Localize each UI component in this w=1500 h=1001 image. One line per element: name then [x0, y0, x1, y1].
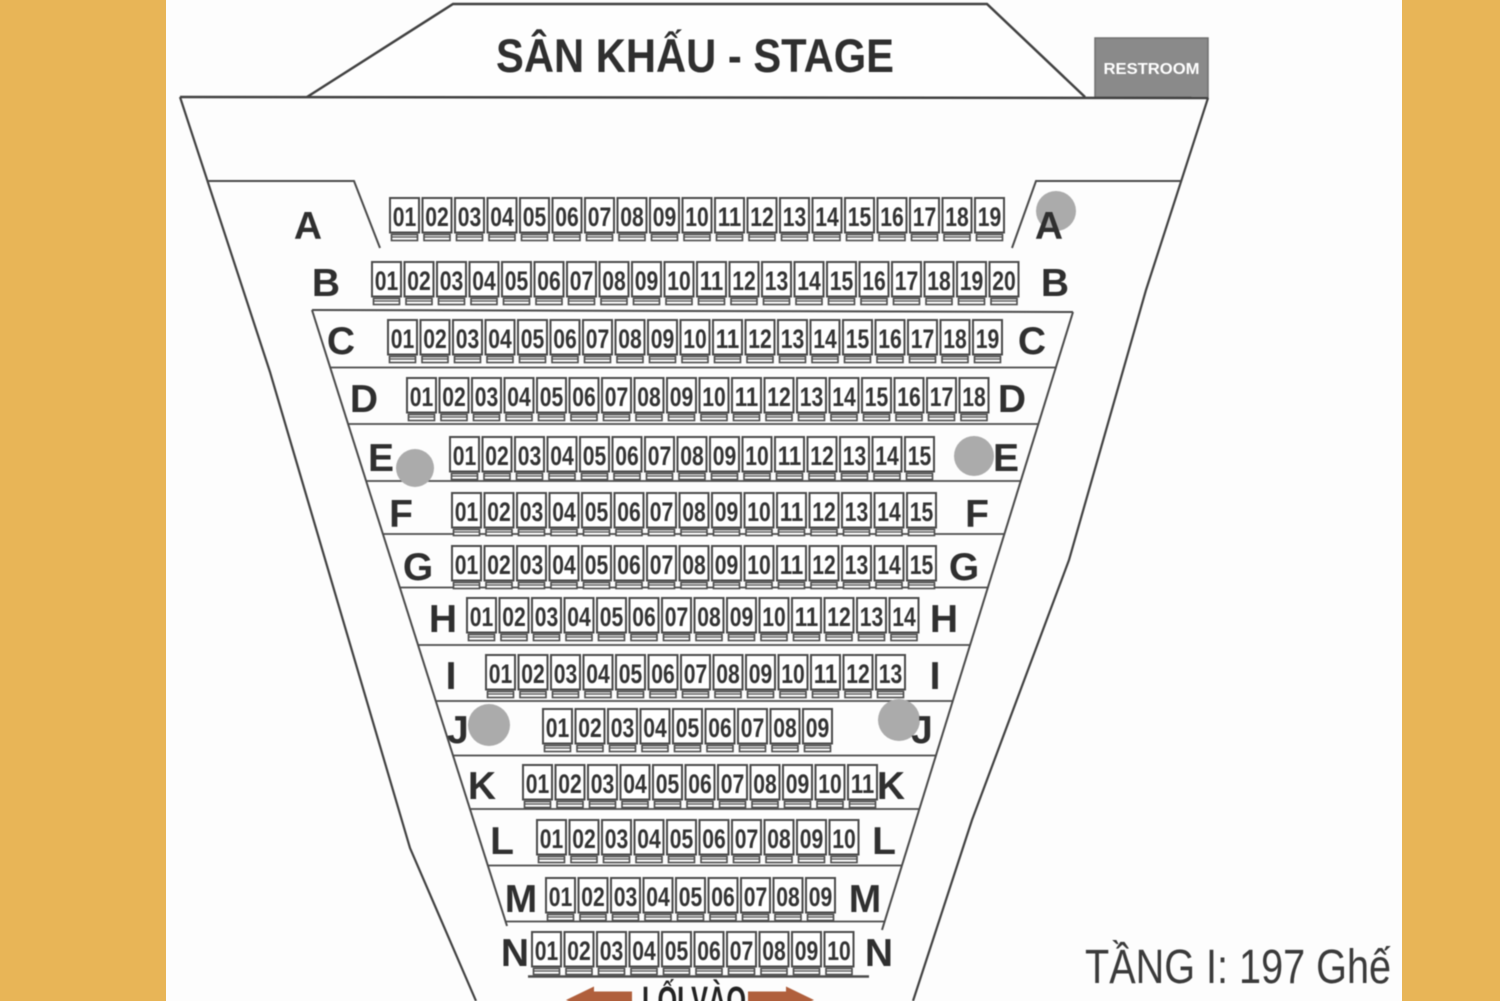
svg-text:02: 02	[487, 497, 511, 527]
svg-text:07: 07	[665, 602, 689, 632]
svg-text:07: 07	[586, 324, 610, 354]
svg-text:05: 05	[600, 602, 624, 632]
svg-text:01: 01	[453, 441, 477, 471]
svg-text:04: 04	[632, 936, 656, 966]
svg-text:08: 08	[682, 497, 706, 527]
svg-text:10: 10	[827, 936, 851, 966]
svg-text:04: 04	[552, 550, 576, 580]
svg-text:09: 09	[809, 882, 833, 912]
svg-text:08: 08	[637, 382, 661, 412]
svg-text:09: 09	[715, 497, 739, 527]
svg-text:14: 14	[877, 550, 901, 580]
svg-text:06: 06	[555, 202, 579, 232]
svg-text:06: 06	[553, 324, 577, 354]
svg-text:C: C	[1018, 320, 1046, 363]
svg-text:01: 01	[489, 659, 513, 689]
svg-text:12: 12	[810, 441, 834, 471]
svg-text:11: 11	[778, 441, 802, 471]
svg-text:07: 07	[588, 202, 612, 232]
svg-text:01: 01	[546, 713, 570, 743]
svg-text:01: 01	[375, 266, 399, 296]
svg-text:06: 06	[711, 882, 735, 912]
svg-text:02: 02	[407, 266, 431, 296]
svg-text:16: 16	[897, 382, 921, 412]
svg-text:18: 18	[945, 202, 969, 232]
svg-text:11: 11	[795, 602, 819, 632]
svg-text:01: 01	[540, 824, 564, 854]
svg-text:06: 06	[697, 936, 721, 966]
svg-text:02: 02	[485, 441, 509, 471]
svg-text:05: 05	[585, 550, 609, 580]
svg-text:J: J	[911, 709, 933, 752]
svg-text:14: 14	[797, 266, 821, 296]
svg-text:05: 05	[523, 202, 547, 232]
svg-text:07: 07	[741, 713, 765, 743]
svg-text:D: D	[998, 378, 1026, 421]
svg-text:17: 17	[895, 266, 919, 296]
svg-text:08: 08	[716, 659, 740, 689]
svg-text:03: 03	[600, 936, 624, 966]
svg-text:07: 07	[648, 441, 672, 471]
svg-text:09: 09	[713, 441, 737, 471]
svg-text:16: 16	[880, 202, 904, 232]
svg-text:LỐI VÀO: LỐI VÀO	[642, 977, 746, 1001]
svg-text:10: 10	[762, 602, 786, 632]
svg-text:12: 12	[767, 382, 791, 412]
svg-text:15: 15	[848, 202, 872, 232]
svg-text:01: 01	[535, 936, 559, 966]
svg-text:06: 06	[632, 602, 656, 632]
svg-text:18: 18	[962, 382, 986, 412]
svg-text:10: 10	[818, 769, 842, 799]
svg-text:E: E	[993, 437, 1019, 480]
svg-text:04: 04	[490, 202, 514, 232]
svg-text:07: 07	[744, 882, 768, 912]
svg-text:08: 08	[602, 266, 626, 296]
svg-text:10: 10	[685, 202, 709, 232]
svg-text:01: 01	[470, 602, 494, 632]
svg-text:01: 01	[391, 324, 415, 354]
svg-text:04: 04	[586, 659, 610, 689]
svg-text:09: 09	[730, 602, 754, 632]
svg-text:C: C	[327, 320, 355, 363]
svg-text:03: 03	[458, 202, 482, 232]
svg-text:I: I	[446, 655, 457, 698]
svg-text:09: 09	[670, 382, 694, 412]
svg-text:13: 13	[845, 497, 869, 527]
svg-text:09: 09	[795, 936, 819, 966]
svg-text:09: 09	[651, 324, 675, 354]
svg-text:09: 09	[635, 266, 659, 296]
svg-text:F: F	[389, 493, 413, 536]
svg-text:10: 10	[683, 324, 707, 354]
svg-text:06: 06	[615, 441, 639, 471]
svg-text:01: 01	[410, 382, 434, 412]
svg-text:04: 04	[550, 441, 574, 471]
svg-text:N: N	[501, 932, 529, 975]
svg-text:SÂN KHẤU - STAGE: SÂN KHẤU - STAGE	[496, 29, 894, 82]
svg-text:02: 02	[502, 602, 526, 632]
svg-text:04: 04	[623, 769, 647, 799]
svg-text:E: E	[368, 437, 394, 480]
svg-text:17: 17	[930, 382, 954, 412]
svg-text:05: 05	[656, 769, 680, 799]
svg-text:11: 11	[780, 497, 804, 527]
svg-text:01: 01	[455, 550, 479, 580]
svg-text:13: 13	[879, 659, 903, 689]
svg-text:11: 11	[735, 382, 759, 412]
svg-text:16: 16	[878, 324, 902, 354]
svg-text:06: 06	[708, 713, 732, 743]
svg-text:03: 03	[591, 769, 615, 799]
svg-text:04: 04	[643, 713, 667, 743]
svg-text:03: 03	[614, 882, 638, 912]
svg-text:F: F	[965, 493, 989, 536]
svg-text:11: 11	[716, 324, 740, 354]
svg-text:03: 03	[535, 602, 559, 632]
svg-text:02: 02	[578, 713, 602, 743]
svg-text:15: 15	[908, 441, 932, 471]
svg-text:A: A	[294, 205, 322, 248]
svg-text:13: 13	[845, 550, 869, 580]
svg-text:03: 03	[605, 824, 629, 854]
svg-text:14: 14	[892, 602, 916, 632]
svg-text:13: 13	[860, 602, 884, 632]
svg-text:17: 17	[911, 324, 935, 354]
svg-text:A: A	[1035, 205, 1063, 248]
svg-text:07: 07	[684, 659, 708, 689]
svg-text:06: 06	[617, 497, 641, 527]
svg-text:12: 12	[732, 266, 756, 296]
svg-text:01: 01	[393, 202, 417, 232]
svg-text:03: 03	[518, 441, 542, 471]
svg-text:02: 02	[581, 882, 605, 912]
svg-text:05: 05	[585, 497, 609, 527]
svg-text:15: 15	[865, 382, 889, 412]
svg-text:12: 12	[812, 550, 836, 580]
svg-text:02: 02	[487, 550, 511, 580]
svg-text:02: 02	[425, 202, 449, 232]
svg-text:04: 04	[472, 266, 496, 296]
svg-text:08: 08	[753, 769, 777, 799]
svg-text:18: 18	[927, 266, 951, 296]
svg-text:K: K	[877, 765, 905, 808]
svg-text:08: 08	[620, 202, 644, 232]
svg-text:14: 14	[877, 497, 901, 527]
svg-text:05: 05	[619, 659, 643, 689]
svg-text:10: 10	[745, 441, 769, 471]
svg-text:11: 11	[780, 550, 804, 580]
svg-text:10: 10	[667, 266, 691, 296]
svg-text:04: 04	[637, 824, 661, 854]
svg-text:02: 02	[423, 324, 447, 354]
svg-text:07: 07	[735, 824, 759, 854]
svg-text:03: 03	[520, 550, 544, 580]
svg-text:04: 04	[646, 882, 670, 912]
svg-text:RESTROOM: RESTROOM	[1104, 61, 1200, 78]
svg-text:15: 15	[846, 324, 870, 354]
svg-text:04: 04	[488, 324, 512, 354]
svg-text:05: 05	[665, 936, 689, 966]
svg-text:11: 11	[700, 266, 724, 296]
svg-text:L: L	[872, 820, 896, 863]
svg-text:09: 09	[749, 659, 773, 689]
svg-text:19: 19	[978, 202, 1002, 232]
svg-text:11: 11	[718, 202, 742, 232]
svg-text:10: 10	[702, 382, 726, 412]
svg-text:17: 17	[913, 202, 937, 232]
svg-text:02: 02	[442, 382, 466, 412]
svg-text:01: 01	[526, 769, 550, 799]
svg-text:13: 13	[783, 202, 807, 232]
svg-text:J: J	[447, 709, 469, 752]
svg-text:09: 09	[653, 202, 677, 232]
svg-text:05: 05	[505, 266, 529, 296]
svg-text:13: 13	[765, 266, 789, 296]
svg-text:14: 14	[813, 324, 837, 354]
svg-text:07: 07	[605, 382, 629, 412]
svg-text:02: 02	[521, 659, 545, 689]
svg-text:03: 03	[456, 324, 480, 354]
svg-text:03: 03	[440, 266, 464, 296]
svg-text:06: 06	[572, 382, 596, 412]
svg-text:11: 11	[851, 769, 875, 799]
svg-text:09: 09	[800, 824, 824, 854]
svg-text:12: 12	[750, 202, 774, 232]
svg-text:19: 19	[960, 266, 984, 296]
svg-text:13: 13	[843, 441, 867, 471]
svg-text:K: K	[468, 765, 496, 808]
svg-text:09: 09	[786, 769, 810, 799]
svg-text:10: 10	[781, 659, 805, 689]
svg-text:08: 08	[776, 882, 800, 912]
svg-text:14: 14	[875, 441, 899, 471]
svg-text:06: 06	[617, 550, 641, 580]
svg-text:D: D	[350, 378, 378, 421]
svg-text:07: 07	[650, 550, 674, 580]
svg-text:03: 03	[554, 659, 578, 689]
svg-text:13: 13	[800, 382, 824, 412]
svg-text:05: 05	[679, 882, 703, 912]
svg-text:03: 03	[475, 382, 499, 412]
svg-text:05: 05	[676, 713, 700, 743]
svg-text:01: 01	[549, 882, 573, 912]
svg-text:08: 08	[680, 441, 704, 471]
svg-text:07: 07	[730, 936, 754, 966]
svg-text:B: B	[1041, 262, 1069, 305]
svg-text:15: 15	[910, 550, 934, 580]
svg-text:04: 04	[507, 382, 531, 412]
svg-text:06: 06	[651, 659, 675, 689]
svg-text:01: 01	[455, 497, 479, 527]
svg-text:13: 13	[781, 324, 805, 354]
svg-text:L: L	[490, 820, 514, 863]
svg-text:12: 12	[846, 659, 870, 689]
svg-text:08: 08	[697, 602, 721, 632]
svg-text:06: 06	[537, 266, 561, 296]
svg-text:G: G	[949, 546, 979, 589]
svg-text:11: 11	[814, 659, 838, 689]
svg-text:12: 12	[748, 324, 772, 354]
svg-text:G: G	[403, 546, 433, 589]
svg-text:06: 06	[702, 824, 726, 854]
svg-text:02: 02	[567, 936, 591, 966]
svg-text:07: 07	[721, 769, 745, 799]
svg-text:10: 10	[832, 824, 856, 854]
svg-text:18: 18	[943, 324, 967, 354]
svg-text:15: 15	[830, 266, 854, 296]
svg-text:12: 12	[827, 602, 851, 632]
svg-text:07: 07	[570, 266, 594, 296]
svg-text:M: M	[505, 878, 538, 921]
svg-text:12: 12	[812, 497, 836, 527]
svg-text:05: 05	[521, 324, 545, 354]
svg-text:03: 03	[520, 497, 544, 527]
svg-text:B: B	[312, 262, 340, 305]
svg-text:08: 08	[762, 936, 786, 966]
svg-text:10: 10	[747, 550, 771, 580]
svg-text:14: 14	[815, 202, 839, 232]
svg-text:H: H	[429, 598, 457, 641]
svg-text:H: H	[930, 598, 958, 641]
svg-text:05: 05	[670, 824, 694, 854]
svg-text:N: N	[865, 932, 893, 975]
svg-text:02: 02	[558, 769, 582, 799]
svg-text:I: I	[930, 655, 941, 698]
svg-text:05: 05	[583, 441, 607, 471]
svg-text:08: 08	[682, 550, 706, 580]
svg-text:08: 08	[773, 713, 797, 743]
svg-text:10: 10	[747, 497, 771, 527]
svg-text:08: 08	[767, 824, 791, 854]
svg-text:04: 04	[567, 602, 591, 632]
svg-text:19: 19	[976, 324, 1000, 354]
svg-text:20: 20	[992, 266, 1016, 296]
svg-text:TẦNG I: 197 Ghế: TẦNG I: 197 Ghế	[1085, 940, 1391, 994]
svg-text:07: 07	[650, 497, 674, 527]
svg-text:05: 05	[540, 382, 564, 412]
svg-text:M: M	[849, 878, 882, 921]
svg-text:04: 04	[552, 497, 576, 527]
svg-text:09: 09	[715, 550, 739, 580]
svg-text:03: 03	[611, 713, 635, 743]
svg-text:09: 09	[806, 713, 830, 743]
svg-text:14: 14	[832, 382, 856, 412]
svg-text:15: 15	[910, 497, 934, 527]
svg-text:02: 02	[572, 824, 596, 854]
svg-text:08: 08	[618, 324, 642, 354]
svg-text:06: 06	[688, 769, 712, 799]
svg-text:16: 16	[862, 266, 886, 296]
